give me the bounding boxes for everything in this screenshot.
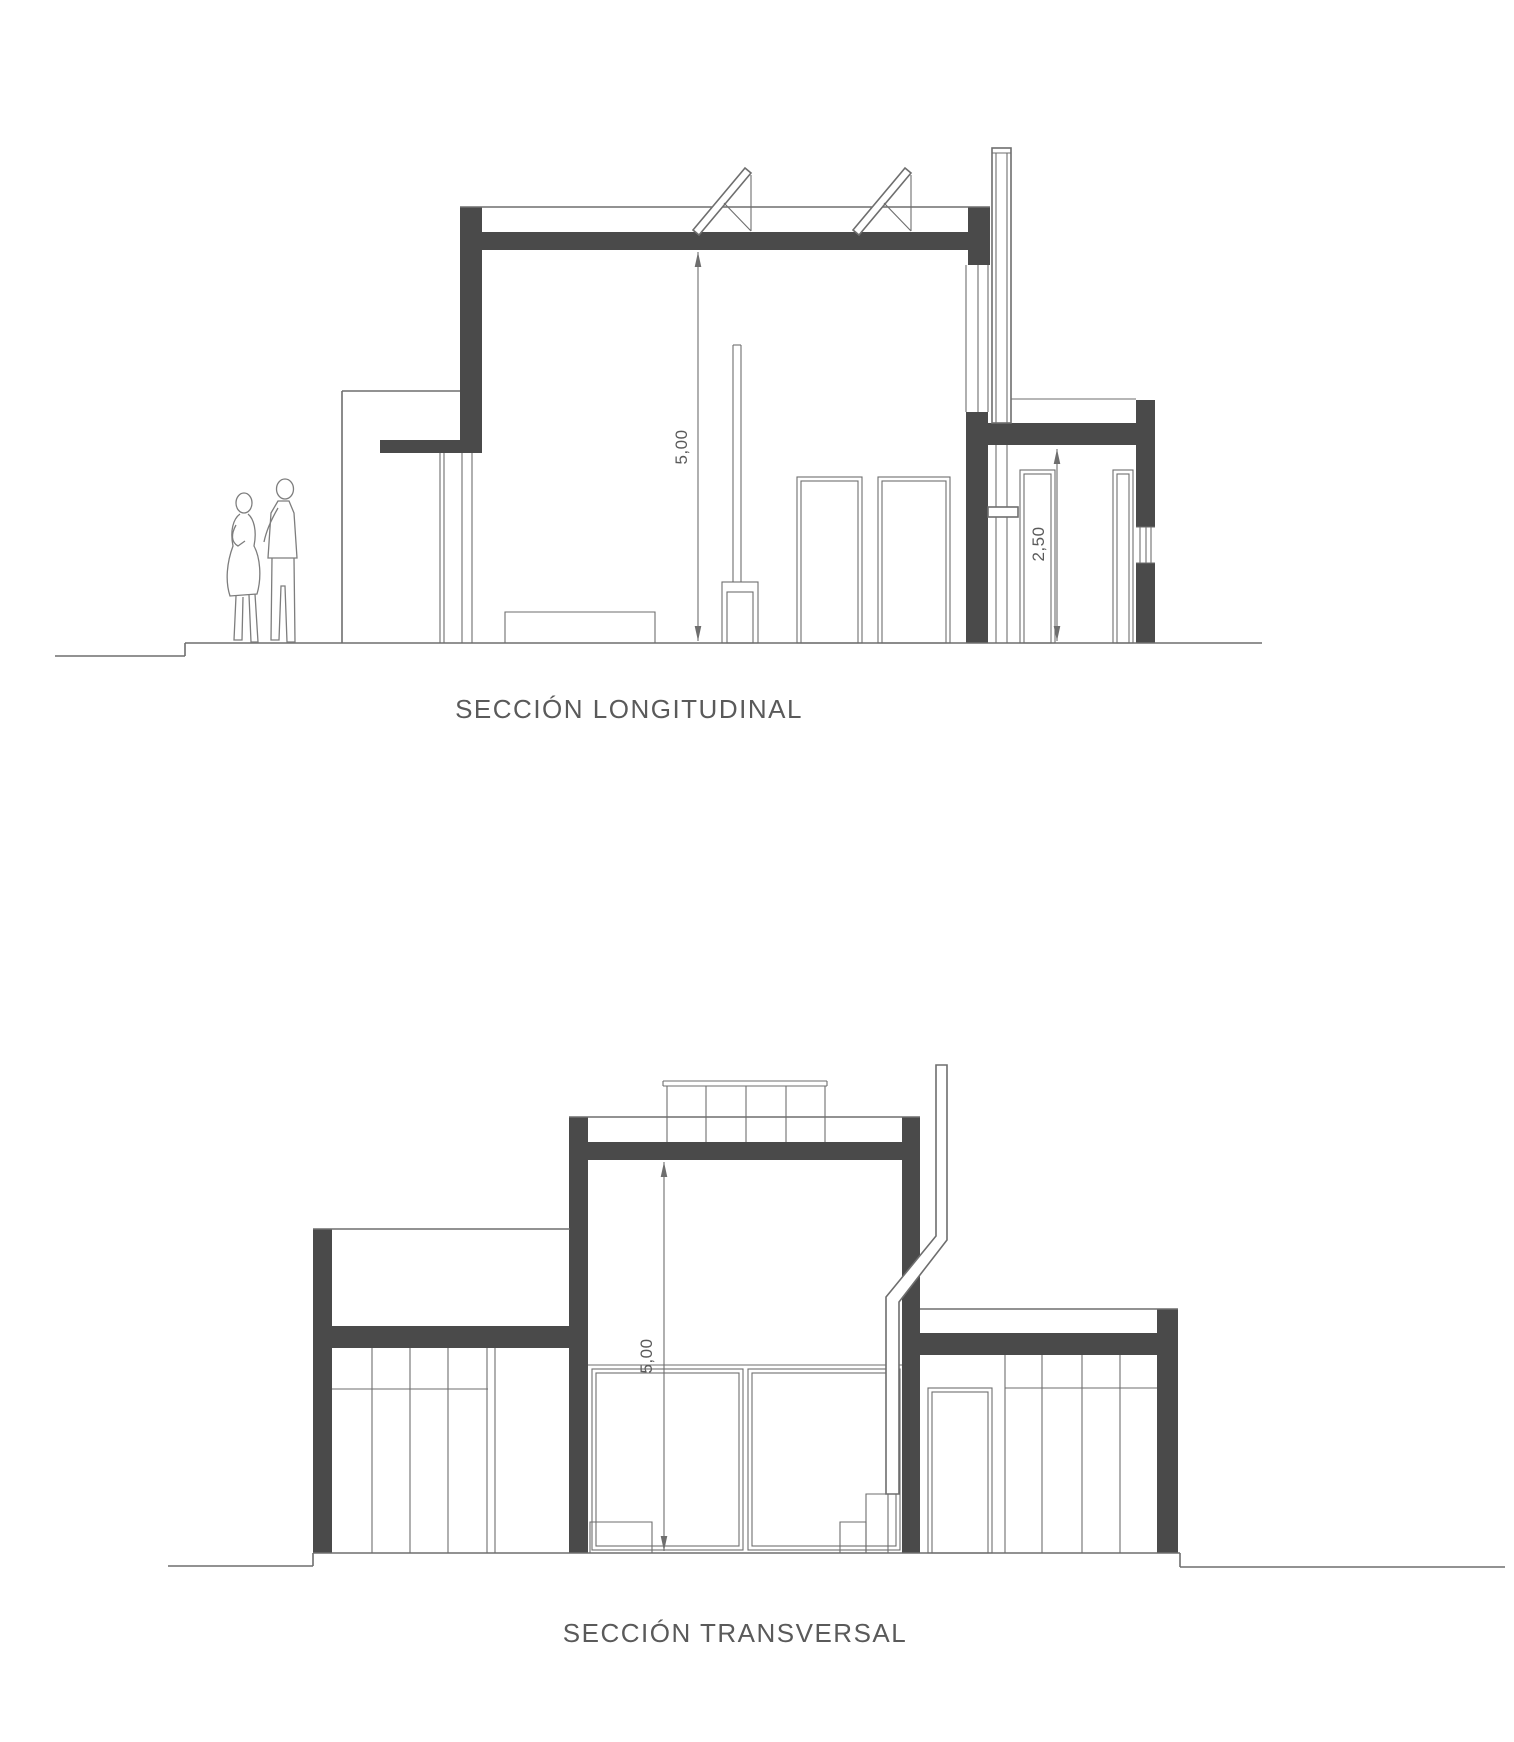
left-wing-slab	[332, 1326, 570, 1348]
dimension-label: 2,50	[1029, 526, 1048, 561]
solar-panel-icon	[853, 168, 911, 235]
central-left-wall	[569, 1117, 588, 1553]
cut-walls	[313, 1117, 1178, 1553]
wall-window	[1136, 527, 1155, 563]
door-frame	[797, 477, 862, 643]
section-longitudinal: 5,00 2,50 SECCIÓN LONGITUDINAL	[55, 148, 1262, 724]
clerestory-window	[966, 265, 988, 412]
ground-line	[168, 1553, 1505, 1567]
right-wall-upper	[1136, 400, 1155, 527]
glass-panel	[592, 1369, 743, 1550]
person-woman-icon	[227, 493, 260, 642]
right-wing-wall	[1157, 1309, 1178, 1553]
annex-ceiling-slab	[966, 423, 1136, 445]
entry-canopy	[380, 440, 462, 453]
bench	[505, 612, 655, 643]
door-frame	[928, 1388, 992, 1553]
door-frame	[878, 477, 950, 643]
dimension-2-5m: 2,50	[1029, 449, 1060, 641]
section-title: SECCIÓN TRANSVERSAL	[563, 1618, 907, 1648]
arrow-down-icon	[695, 626, 702, 641]
right-wing-slab	[920, 1333, 1157, 1355]
roof-slab	[482, 232, 970, 250]
section-title: SECCIÓN LONGITUDINAL	[455, 694, 803, 724]
right-wall-lower	[1136, 563, 1155, 643]
dimension-5m: 5,00	[672, 252, 701, 641]
cut-walls	[380, 207, 1155, 643]
dimension-label: 5,00	[672, 429, 691, 464]
arrow-up-icon	[661, 1162, 668, 1177]
glazing-mullions	[332, 1348, 495, 1553]
person-man-icon	[264, 479, 297, 642]
ground-line	[55, 643, 1262, 656]
glazing-mullions	[1005, 1355, 1157, 1553]
arrow-down-icon	[661, 1536, 668, 1551]
drawing-sheet: 5,00 2,50 SECCIÓN LONGITUDINAL	[0, 0, 1514, 1742]
central-roof-slab	[588, 1142, 902, 1160]
architectural-drawing: 5,00 2,50 SECCIÓN LONGITUDINAL	[0, 0, 1514, 1742]
section-transversal: 5,00 SECCIÓN TRANSVERSAL	[168, 1065, 1505, 1648]
dimension-label: 5,00	[637, 1338, 656, 1373]
solar-panel-icon	[693, 168, 751, 235]
solar-panel-bank-icon	[663, 1081, 827, 1142]
door-frame	[1113, 470, 1133, 643]
left-wing-wall	[313, 1229, 332, 1553]
right-parapet	[968, 207, 990, 265]
left-wall	[460, 207, 482, 453]
arrow-up-icon	[1054, 449, 1061, 464]
central-right-wall	[902, 1117, 920, 1553]
entry-porch	[342, 391, 472, 643]
dimension-5m: 5,00	[637, 1162, 667, 1551]
shared-wall	[966, 412, 988, 643]
chimney-icon	[988, 148, 1018, 643]
wood-stove-icon	[722, 345, 758, 643]
glass-panel	[748, 1369, 900, 1550]
arrow-up-icon	[695, 252, 702, 267]
